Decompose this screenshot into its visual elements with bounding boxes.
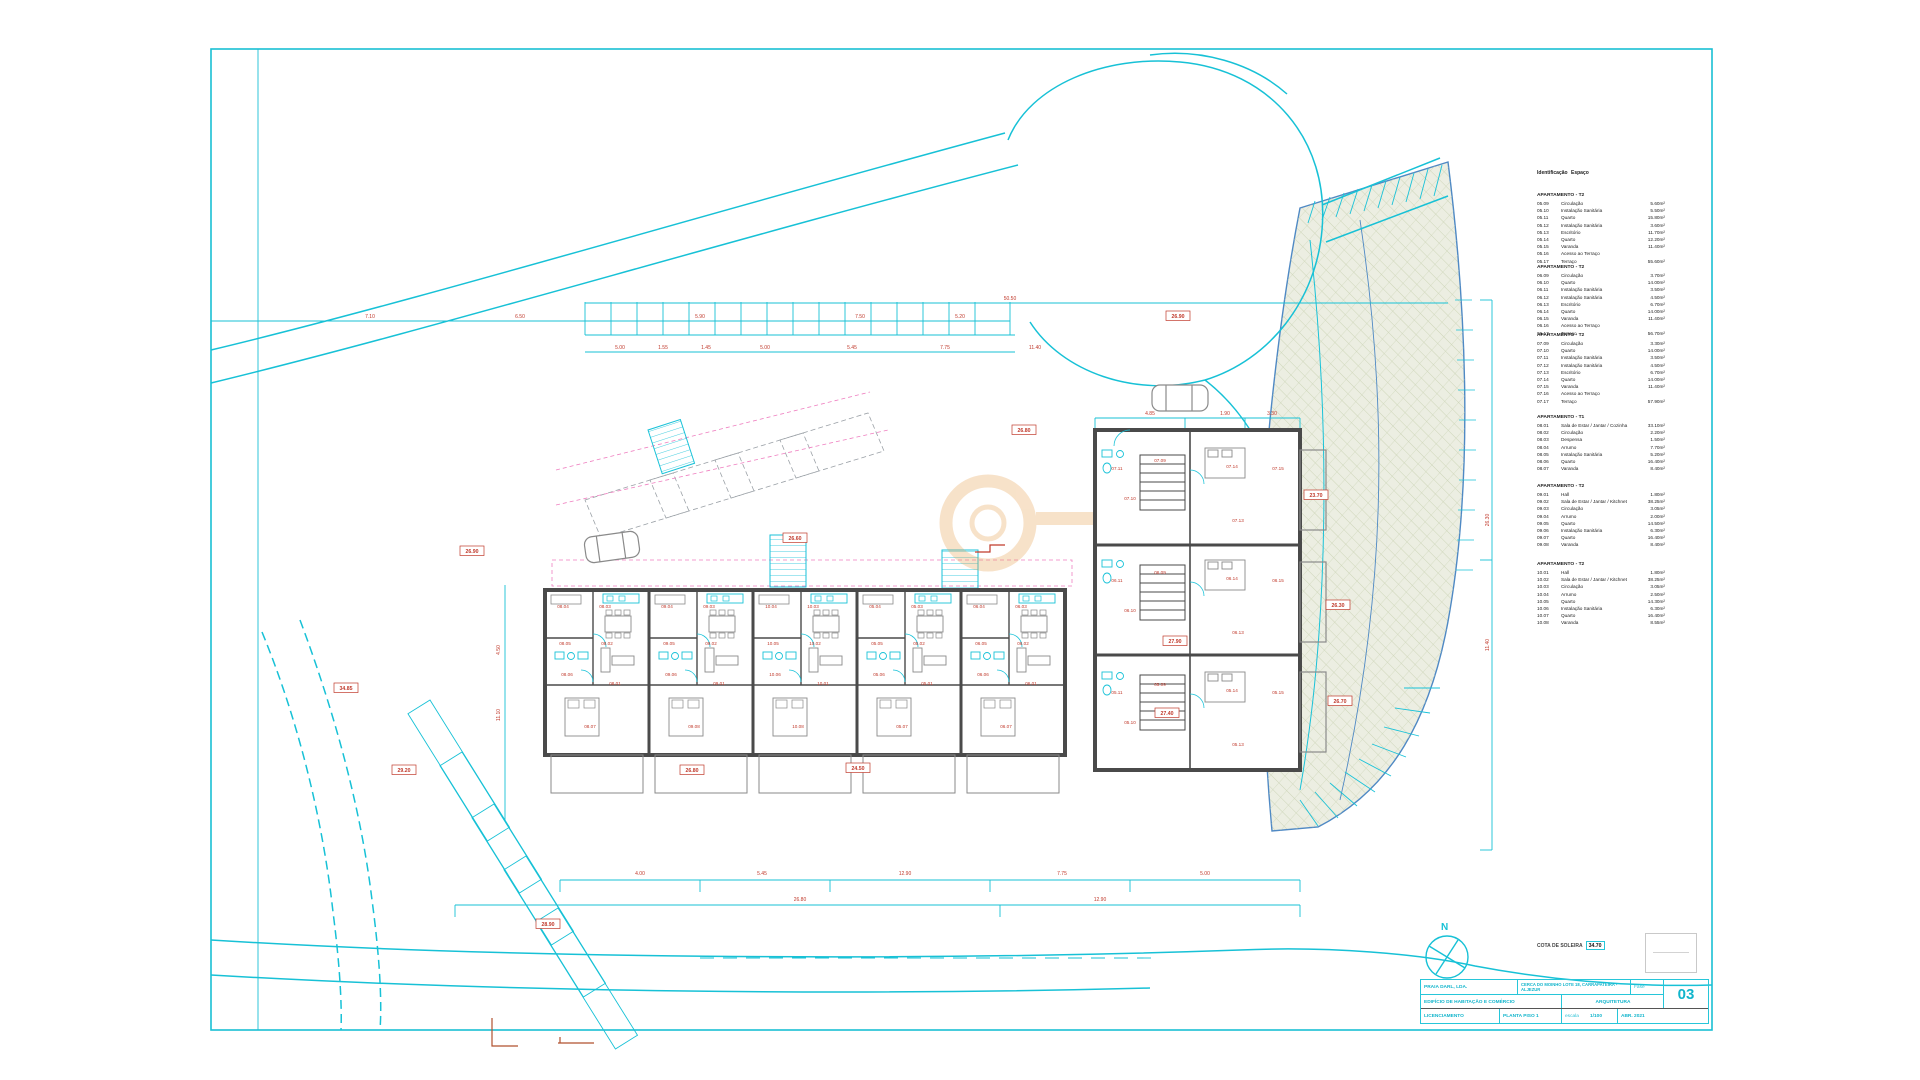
dimension-label: 7.75	[940, 345, 950, 351]
legend-row: 06.12Instalação Sanitária4.50m²	[1537, 294, 1665, 301]
legend-name: Circulação	[1561, 272, 1650, 279]
legend-name: Quarto	[1561, 376, 1648, 383]
legend-area: 6.30m²	[1650, 527, 1665, 534]
legend-block-title: APARTAMENTO - T2	[1537, 333, 1665, 338]
room-code-label: 06.09	[1154, 570, 1166, 575]
legend-area: 33.10m²	[1648, 422, 1665, 429]
legend-block-5: APARTAMENTO - T210.01Hall1.80m²10.02Sala…	[1537, 562, 1665, 627]
room-code-label: 08.03	[599, 604, 611, 609]
dimension-label: 1.55	[658, 345, 668, 351]
legend-row: 08.01Sala de Estar / Jantar / Cozinha33.…	[1537, 422, 1665, 429]
legend-name: Hall	[1561, 491, 1650, 498]
dimension-label: 12.90	[1094, 897, 1107, 903]
legend-name: Terraço	[1561, 398, 1648, 405]
legend-code: 10.05	[1537, 598, 1561, 605]
dimension-label: 1.45	[701, 345, 711, 351]
legend-area: 14.00m²	[1648, 376, 1665, 383]
legend-area: 2.00m²	[1650, 513, 1665, 520]
elevation-marker: 23.70	[1310, 493, 1323, 499]
room-code-label: 10.06	[769, 672, 781, 677]
title-date: ABR. 2021	[1617, 1009, 1661, 1023]
legend-code: 06.09	[1537, 272, 1561, 279]
title-block: PRAIA DARL, LDA. CERCA DO MOINHO LOTE 18…	[1420, 979, 1709, 1024]
dimension-label: 26.80	[794, 897, 807, 903]
legend-code: 05.15	[1537, 243, 1561, 250]
legend-code: 08.07	[1537, 465, 1561, 472]
dimension-label: 11.40	[1029, 345, 1041, 351]
legend-block-1: APARTAMENTO - T206.09Circulação3.70m²06.…	[1537, 265, 1665, 337]
legend-code: 06.15	[1537, 315, 1561, 322]
room-code-label: 10.01	[817, 681, 829, 686]
legend-name: Sala de Estar / Jantar / Kitchnet	[1561, 498, 1648, 505]
room-code-label: 05.07	[896, 724, 908, 729]
dimension-label: 5.45	[757, 871, 767, 877]
legend-row: 07.17Terraço57.90m²	[1537, 398, 1665, 405]
room-code-label: 07.13	[1232, 518, 1244, 523]
room-code-label: 05.06	[873, 672, 885, 677]
dimension-label: 4.50	[496, 645, 502, 655]
legend-block-title: APARTAMENTO - T2	[1537, 484, 1665, 489]
road-left	[262, 620, 381, 1030]
room-code-label: 06.02	[1017, 641, 1029, 646]
legend-code: 08.06	[1537, 458, 1561, 465]
legend-name: Instalação Sanitária	[1561, 222, 1650, 229]
dimension-label: 5.00	[615, 345, 625, 351]
legend-name: Varanda	[1561, 383, 1648, 390]
legend-row: 10.05Quarto14.30m²	[1537, 598, 1665, 605]
cota-label: COTA DE SOLEIRA	[1537, 943, 1583, 949]
legend-code: 10.03	[1537, 583, 1561, 590]
room-code-label: 06.04	[973, 604, 985, 609]
legend-area: 16.40m²	[1648, 458, 1665, 465]
legend-name: Escritório	[1561, 229, 1648, 236]
elevation-marker: 24.50	[852, 766, 865, 772]
legend-code: 09.02	[1537, 498, 1561, 505]
legend-name: Varanda	[1561, 465, 1650, 472]
legend-area: 8.55m²	[1650, 619, 1665, 626]
north-compass: N	[1426, 922, 1468, 978]
room-code-label: 06.15	[1272, 578, 1284, 583]
legend-row: 05.17Terraço55.60m²	[1537, 258, 1665, 265]
legend-row: 05.14Quarto12.20m²	[1537, 236, 1665, 243]
legend-code: 10.04	[1537, 591, 1561, 598]
legend-code: 06.11	[1537, 286, 1561, 293]
legend-name: Varanda	[1561, 619, 1650, 626]
dimension-label: 5.20	[955, 314, 965, 320]
room-code-label: 05.04	[869, 604, 881, 609]
room-code-label: 05.09	[1154, 682, 1166, 687]
legend-code: 08.01	[1537, 422, 1561, 429]
legend-row: 10.03Circulação3.05m²	[1537, 583, 1665, 590]
dimension-label: 5.00	[1200, 871, 1210, 877]
legend-area: 4.50m²	[1650, 294, 1665, 301]
room-code-label: 05.01	[921, 681, 933, 686]
dimension-label: 1.90	[1220, 411, 1230, 417]
room-code-label: 06.05	[975, 641, 987, 646]
legend-row: 07.15Varanda11.40m²	[1537, 383, 1665, 390]
legend-row: 05.09Circulação5.60m²	[1537, 200, 1665, 207]
legend-code: 07.12	[1537, 362, 1561, 369]
title-scale-value: 1/100	[1587, 1009, 1617, 1023]
elevation-marker: 26.90	[466, 549, 479, 555]
north-label: N	[1441, 922, 1448, 933]
legend-area: 38.25m²	[1648, 498, 1665, 505]
legend-row: 06.09Circulação3.70m²	[1537, 272, 1665, 279]
dimension-label: 12.90	[899, 871, 912, 877]
legend-area: 5.60m²	[1650, 200, 1665, 207]
legend-code: 08.04	[1537, 444, 1561, 451]
legend-code: 05.10	[1537, 207, 1561, 214]
legend-code: 10.01	[1537, 569, 1561, 576]
legend-code: 07.15	[1537, 383, 1561, 390]
legend-area: 16.40m²	[1648, 534, 1665, 541]
room-code-label: 06.10	[1124, 608, 1136, 613]
legend-row: 06.16Acesso ao Terraço	[1537, 322, 1665, 329]
legend-row: 09.01Hall1.80m²	[1537, 491, 1665, 498]
legend-name: Instalação Sanitária	[1561, 362, 1650, 369]
legend-row: 09.06Instalação Sanitária6.30m²	[1537, 527, 1665, 534]
legend-area: 3.60m²	[1650, 222, 1665, 229]
legend-area: 14.00m²	[1648, 347, 1665, 354]
legend-row: 08.02Circulação2.20m²	[1537, 429, 1665, 436]
legend-area: 57.90m²	[1648, 398, 1665, 405]
elevation-marker: 26.80	[686, 768, 699, 774]
legend-row: 05.15Varanda11.40m²	[1537, 243, 1665, 250]
legend-code: 10.06	[1537, 605, 1561, 612]
legend-row: 10.06Instalação Sanitária6.30m²	[1537, 605, 1665, 612]
room-code-label: 09.02	[705, 641, 717, 646]
room-code-label: 07.14	[1226, 464, 1238, 469]
cota-de-soleira: COTA DE SOLEIRA 34.70	[1537, 941, 1605, 950]
title-drawing-name: PLANTA PISO 1	[1499, 1009, 1561, 1023]
room-code-label: 08.01	[609, 681, 621, 686]
elevation-marker: 28.90	[542, 922, 555, 928]
legend-row: 08.06Quarto16.40m²	[1537, 458, 1665, 465]
legend-name: Terraço	[1561, 258, 1648, 265]
legend-name: Quarto	[1561, 612, 1648, 619]
legend-code: 07.17	[1537, 398, 1561, 405]
legend-code: 07.16	[1537, 390, 1561, 397]
stamp-box	[1645, 933, 1697, 973]
room-code-label: 10.02	[809, 641, 821, 646]
legend-code: 09.01	[1537, 491, 1561, 498]
legend-code: 09.07	[1537, 534, 1561, 541]
legend-code: 05.14	[1537, 236, 1561, 243]
legend-name: Circulação	[1561, 340, 1650, 347]
room-code-label: 08.07	[584, 724, 596, 729]
legend-name: Escritório	[1561, 369, 1650, 376]
legend-name: Arrumo	[1561, 591, 1650, 598]
room-code-label: 07.11	[1111, 466, 1123, 471]
room-code-label: 06.03	[1015, 604, 1027, 609]
legend-area: 6.70m²	[1650, 301, 1665, 308]
legend-name: Despensa	[1561, 436, 1650, 443]
legend-area: 11.40m²	[1648, 315, 1665, 322]
legend-name: Circulação	[1561, 583, 1650, 590]
elevation-marker: 29.20	[398, 768, 411, 774]
legend-row: 09.05Quarto14.50m²	[1537, 520, 1665, 527]
legend-block-title: APARTAMENTO - T2	[1537, 562, 1665, 567]
room-code-label: 08.05	[559, 641, 571, 646]
room-code-label: 07.09	[1154, 458, 1166, 463]
legend-block-4: APARTAMENTO - T209.01Hall1.80m²09.02Sala…	[1537, 484, 1665, 549]
room-code-label: 09.01	[713, 681, 725, 686]
elevation-marker: 34.85	[340, 686, 353, 692]
legend-code: 06.14	[1537, 308, 1561, 315]
legend-area: 11.40m²	[1648, 243, 1665, 250]
legend-code: 10.02	[1537, 576, 1561, 583]
legend-block-title: APARTAMENTO - T1	[1537, 415, 1665, 420]
room-code-label: 09.04	[661, 604, 673, 609]
dimension-label: 7.50	[855, 314, 865, 320]
legend-code: 05.16	[1537, 250, 1561, 257]
legend-name: Quarto	[1561, 534, 1648, 541]
legend-row: 06.11Instalação Sanitária3.50m²	[1537, 286, 1665, 293]
legend-name: Acesso ao Terraço	[1561, 322, 1665, 329]
title-phase: LICENCIAMENTO	[1421, 1009, 1499, 1023]
dimension-label: 3.30	[1267, 411, 1277, 417]
legend-name: Instalação Sanitária	[1561, 451, 1650, 458]
legend-row: 10.07Quarto16.40m²	[1537, 612, 1665, 619]
stairs-icon	[648, 419, 978, 602]
legend-area: 1.80m²	[1650, 569, 1665, 576]
legend-area: 3.05m²	[1650, 583, 1665, 590]
legend-code: 05.17	[1537, 258, 1561, 265]
right-building	[1095, 430, 1326, 770]
room-code-label: 05.11	[1111, 690, 1123, 695]
legend-row: 07.14Quarto14.00m²	[1537, 376, 1665, 383]
legend-row: 07.12Instalação Sanitária4.50m²	[1537, 362, 1665, 369]
legend-row: 05.11Quarto15.80m²	[1537, 214, 1665, 221]
legend-area: 8.40m²	[1650, 465, 1665, 472]
room-code-label: 06.14	[1226, 576, 1238, 581]
legend-header-col1: Identificação	[1537, 170, 1571, 176]
room-code-label: 07.10	[1124, 496, 1136, 501]
legend-row: 07.11Instalação Sanitária3.50m²	[1537, 354, 1665, 361]
legend-name: Varanda	[1561, 541, 1650, 548]
legend-row: 10.01Hall1.80m²	[1537, 569, 1665, 576]
title-scale-label: escala	[1561, 1009, 1587, 1023]
room-code-label: 05.03	[911, 604, 923, 609]
room-code-label: 05.02	[913, 641, 925, 646]
legend-code: 08.05	[1537, 451, 1561, 458]
legend-row: 06.14Quarto14.00m²	[1537, 308, 1665, 315]
drawing-frame	[211, 49, 1712, 1030]
legend-code: 08.03	[1537, 436, 1561, 443]
legend-name: Quarto	[1561, 347, 1648, 354]
dimension-label: 26.30	[1485, 514, 1491, 527]
legend-name: Instalação Sanitária	[1561, 286, 1650, 293]
legend-name: Quarto	[1561, 279, 1648, 286]
legend-code: 07.14	[1537, 376, 1561, 383]
legend-row: 10.02Sala de Estar / Jantar / Kitchnet38…	[1537, 576, 1665, 583]
legend-code: 10.08	[1537, 619, 1561, 626]
room-code-label: 05.14	[1226, 688, 1238, 693]
legend-row: 05.10Instalação Sanitária5.50m²	[1537, 207, 1665, 214]
legend-name: Varanda	[1561, 243, 1648, 250]
room-code-label: 06.13	[1232, 630, 1244, 635]
room-code-label: 06.06	[977, 672, 989, 677]
legend-name: Quarto	[1561, 214, 1648, 221]
cota-value: 34.70	[1586, 941, 1605, 950]
legend-area: 16.40m²	[1648, 612, 1665, 619]
dimension-label: 5.00	[760, 345, 770, 351]
legend-area: 38.25m²	[1648, 576, 1665, 583]
legend-code: 07.13	[1537, 369, 1561, 376]
legend-name: Quarto	[1561, 458, 1648, 465]
legend-area: 55.60m²	[1648, 258, 1665, 265]
dimension-label: 11.40	[1485, 639, 1491, 651]
legend-code: 09.03	[1537, 505, 1561, 512]
legend-area: 3.30m²	[1650, 340, 1665, 347]
legend-name: Instalação Sanitária	[1561, 207, 1650, 214]
room-code-label: 10.03	[807, 604, 819, 609]
legend-area: 1.50m²	[1650, 436, 1665, 443]
legend-name: Acesso ao Terraço	[1561, 390, 1665, 397]
legend-code: 07.11	[1537, 354, 1561, 361]
room-code-label: 05.13	[1232, 742, 1244, 747]
elevation-marker: 26.60	[789, 536, 802, 542]
legend-block-2: APARTAMENTO - T207.09Circulação3.30m²07.…	[1537, 333, 1665, 405]
legend-code: 06.16	[1537, 322, 1561, 329]
legend-name: Varanda	[1561, 315, 1648, 322]
legend-row: 05.16Acesso ao Terraço	[1537, 250, 1665, 257]
dimension-label: 5.45	[847, 345, 857, 351]
legend-code: 07.09	[1537, 340, 1561, 347]
legend-block-0: APARTAMENTO - T205.09Circulação5.60m²05.…	[1537, 193, 1665, 265]
legend-code: 06.13	[1537, 301, 1561, 308]
title-project: EDIFÍCIO DE HABITAÇÃO E COMÉRCIO	[1421, 995, 1561, 1009]
legend-name: Instalação Sanitária	[1561, 294, 1650, 301]
room-code-label: 05.05	[871, 641, 883, 646]
title-location: CERCA DO MOINHO LOTE 18, CARRAPATEIRA - …	[1517, 980, 1630, 994]
legend-code: 05.11	[1537, 214, 1561, 221]
legend-header: Identificação Espaço	[1537, 170, 1665, 176]
room-code-label: 05.10	[1124, 720, 1136, 725]
legend-area: 15.80m²	[1648, 214, 1665, 221]
floor-plan-sheet: { "drawing": { "north_label": "N", "cota…	[0, 0, 1920, 1080]
dimension-label: 5.90	[695, 314, 705, 320]
legend-code: 08.02	[1537, 429, 1561, 436]
room-code-label: 09.03	[703, 604, 715, 609]
dimension-label: 7.75	[1057, 871, 1067, 877]
legend-row: 09.02Sala de Estar / Jantar / Kitchnet38…	[1537, 498, 1665, 505]
legend-row: 09.04Arrumo2.00m²	[1537, 513, 1665, 520]
title-specialty: ARQUITETURA	[1561, 995, 1664, 1009]
elevation-marker: 26.70	[1334, 699, 1347, 705]
unit-terraces	[551, 755, 1059, 793]
room-code-label: 08.06	[561, 672, 573, 677]
legend-area: 3.05m²	[1650, 505, 1665, 512]
legend-area: 7.70m²	[1650, 444, 1665, 451]
legend-code: 05.12	[1537, 222, 1561, 229]
row-building	[545, 590, 1065, 793]
legend-row: 10.08Varanda8.55m²	[1537, 619, 1665, 626]
roads	[211, 53, 1712, 1030]
dimension-label: 7.10	[365, 314, 375, 320]
legend-code: 09.04	[1537, 513, 1561, 520]
terrace-dashed-outlines	[585, 413, 884, 538]
legend-name: Arrumo	[1561, 444, 1650, 451]
legend-row: 10.04Arrumo2.50m²	[1537, 591, 1665, 598]
title-fase-label: Fase	[1630, 980, 1664, 994]
legend-area: 6.70m²	[1650, 369, 1665, 376]
legend-row: 07.16Acesso ao Terraço	[1537, 390, 1665, 397]
dimension-label: 4.00	[635, 871, 645, 877]
parking-row-top	[585, 302, 1010, 335]
legend-row: 08.03Despensa1.50m²	[1537, 436, 1665, 443]
legend-name: Instalação Sanitária	[1561, 605, 1650, 612]
dimension-label: 11.10	[496, 709, 502, 721]
legend-row: 05.12Instalação Sanitária3.60m²	[1537, 222, 1665, 229]
legend-name: Quarto	[1561, 236, 1648, 243]
legend-name: Circulação	[1561, 429, 1650, 436]
room-code-label: 06.01	[1025, 681, 1037, 686]
legend-name: Hall	[1561, 569, 1650, 576]
legend-code: 06.10	[1537, 279, 1561, 286]
legend-name: Escritório	[1561, 301, 1650, 308]
legend-area: 2.20m²	[1650, 429, 1665, 436]
legend-name: Quarto	[1561, 598, 1648, 605]
legend-area: 14.00m²	[1648, 279, 1665, 286]
legend-name: Arrumo	[1561, 513, 1650, 520]
legend-code: 09.06	[1537, 527, 1561, 534]
legend-row: 09.07Quarto16.40m²	[1537, 534, 1665, 541]
legend-code: 05.13	[1537, 229, 1561, 236]
legend-name: Circulação	[1561, 505, 1650, 512]
legend-row: 06.15Varanda11.40m²	[1537, 315, 1665, 322]
legend-name: Instalação Sanitária	[1561, 354, 1650, 361]
room-code-label: 09.08	[688, 724, 700, 729]
room-code-label: 05.15	[1272, 690, 1284, 695]
legend-row: 09.03Circulação3.05m²	[1537, 505, 1665, 512]
elevation-marker: 26.30	[1332, 603, 1345, 609]
legend-block-title: APARTAMENTO - T2	[1537, 265, 1665, 270]
elevation-marker: 26.90	[1172, 314, 1185, 320]
elevation-marker: 26.80	[1018, 428, 1031, 434]
elevation-marker: 27.40	[1161, 711, 1174, 717]
legend-name: Sala de Estar / Jantar / Kitchnet	[1561, 576, 1648, 583]
legend-area: 12.20m²	[1648, 236, 1665, 243]
room-code-label: 10.08	[792, 724, 804, 729]
room-code-label: 08.02	[601, 641, 613, 646]
legend-area: 3.50m²	[1650, 354, 1665, 361]
room-code-label: 08.04	[557, 604, 569, 609]
legend-block-3: APARTAMENTO - T108.01Sala de Estar / Jan…	[1537, 415, 1665, 472]
legend-code: 09.05	[1537, 520, 1561, 527]
room-schedule-legend: Identificação Espaço APARTAMENTO - T205.…	[1537, 170, 1665, 176]
legend-code: 10.07	[1537, 612, 1561, 619]
legend-row: 05.13Escritório11.70m²	[1537, 229, 1665, 236]
legend-name: Circulação	[1561, 200, 1650, 207]
room-code-label: 06.07	[1000, 724, 1012, 729]
legend-row: 06.10Quarto14.00m²	[1537, 279, 1665, 286]
legend-name: Acesso ao Terraço	[1561, 250, 1665, 257]
legend-row: 07.10Quarto14.00m²	[1537, 347, 1665, 354]
legend-area: 14.00m²	[1648, 308, 1665, 315]
legend-code: 07.10	[1537, 347, 1561, 354]
legend-area: 11.40m²	[1648, 383, 1665, 390]
room-code-label: 09.06	[665, 672, 677, 677]
legend-header-col2: Espaço	[1571, 170, 1589, 176]
legend-row: 08.07Varanda8.40m²	[1537, 465, 1665, 472]
legend-area: 1.80m²	[1650, 491, 1665, 498]
legend-area: 14.50m²	[1648, 520, 1665, 527]
legend-name: Quarto	[1561, 520, 1648, 527]
legend-row: 09.08Varanda8.40m²	[1537, 541, 1665, 548]
legend-area: 4.50m²	[1650, 362, 1665, 369]
legend-area: 11.70m²	[1648, 229, 1665, 236]
